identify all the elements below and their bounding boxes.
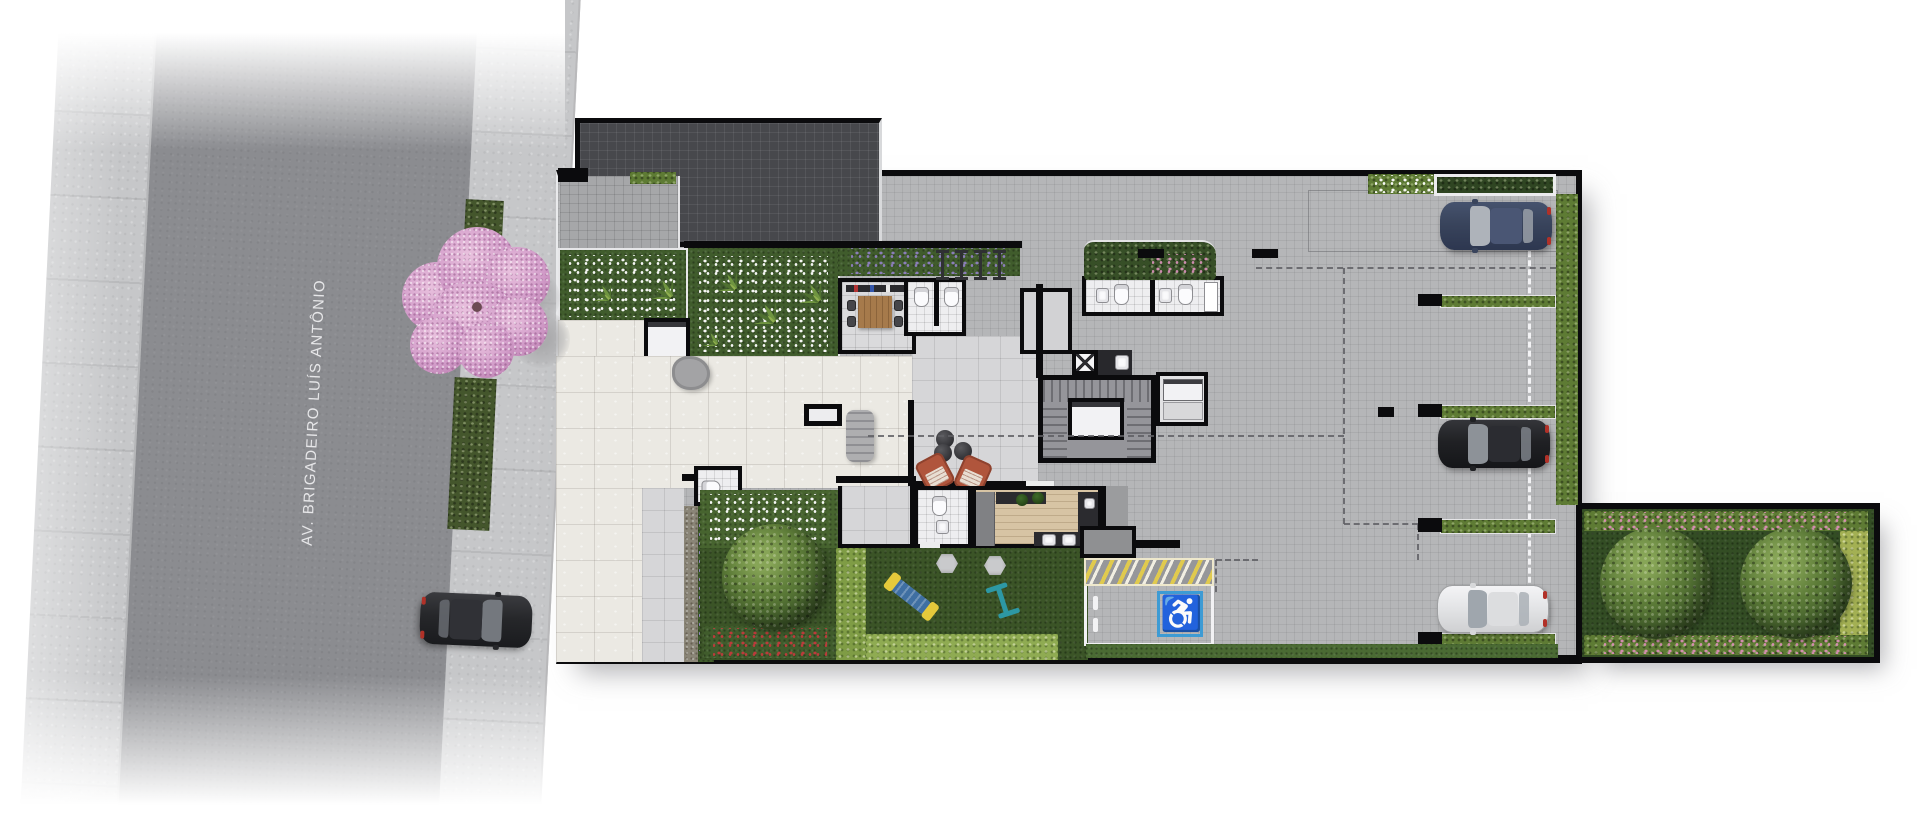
flower-hedge xyxy=(1584,511,1868,531)
planter-hedge xyxy=(1434,174,1556,196)
sink xyxy=(1042,534,1056,546)
bay-tick xyxy=(1093,618,1098,632)
wall-segment xyxy=(1150,280,1155,312)
stair-treads xyxy=(1043,402,1067,458)
round-tree xyxy=(1600,527,1712,639)
sink xyxy=(1096,288,1109,303)
column-stub xyxy=(1378,407,1394,417)
toilet xyxy=(932,496,947,516)
gym-equipment-icon xyxy=(936,250,949,280)
washer xyxy=(1163,379,1203,401)
storage-room xyxy=(1020,288,1072,354)
hedge-strip xyxy=(866,634,1058,660)
wall-segment xyxy=(908,400,914,488)
toilet xyxy=(944,287,959,307)
stair-treads xyxy=(1127,402,1151,458)
agave-plant xyxy=(775,257,821,303)
hedge-mound xyxy=(1084,240,1216,280)
tree-trunk xyxy=(472,302,482,312)
parked-car-white xyxy=(1438,586,1548,632)
parking-hedge-row xyxy=(1440,295,1556,308)
accessible-parking-bay: ♿ xyxy=(1084,586,1214,646)
site-plan-rendering: AV. BRIGADEIRO LUÍS ANTÔNIO xyxy=(0,0,1920,826)
stone-path xyxy=(556,488,642,662)
gym-equipment-icon xyxy=(955,250,968,280)
planter-bench xyxy=(804,404,842,426)
garden-wall xyxy=(684,241,1022,248)
elevator xyxy=(1068,398,1124,440)
counter-sink xyxy=(1098,350,1132,375)
street-name-label: AV. BRIGADEIRO LUÍS ANTÔNIO xyxy=(299,286,332,547)
gym-equipment-icon xyxy=(993,250,1006,280)
wall-segment xyxy=(934,282,939,326)
potted-plant xyxy=(1016,494,1028,506)
sideboard xyxy=(846,285,908,292)
accessible-symbol-box: ♿ xyxy=(1157,591,1203,637)
dining-table xyxy=(858,296,892,328)
parked-car-black xyxy=(1438,420,1550,468)
counter xyxy=(1163,402,1203,420)
gym-equipment-row xyxy=(936,250,1016,276)
sink xyxy=(1062,534,1076,546)
wall-segment xyxy=(558,168,588,182)
chair xyxy=(894,316,903,327)
parked-car-navy xyxy=(1440,202,1552,250)
lounge-sofa xyxy=(672,356,710,390)
bay-tick xyxy=(1093,596,1098,610)
chair xyxy=(847,300,856,311)
entry-hedge xyxy=(630,172,676,184)
agave-plant xyxy=(686,314,718,346)
boundary-hedge xyxy=(1556,194,1578,505)
street-car xyxy=(419,592,533,649)
restroom xyxy=(914,486,972,548)
restrooms-block xyxy=(1082,276,1224,316)
grass-strip xyxy=(1086,644,1558,658)
projection-dashed-line xyxy=(1343,268,1345,524)
projection-dashed-line xyxy=(1215,560,1217,592)
column-stub xyxy=(1418,294,1442,306)
covered-terrace xyxy=(838,486,914,548)
projection-dashed-line xyxy=(868,435,1344,437)
column-stub xyxy=(1418,404,1442,417)
projection-dashed-line xyxy=(1216,559,1258,561)
utility-room xyxy=(1080,526,1136,558)
sink xyxy=(936,520,949,534)
cabinet-run xyxy=(976,492,995,546)
hedge-strip xyxy=(836,548,866,660)
paved-path xyxy=(642,488,684,662)
round-tree xyxy=(1740,527,1852,639)
chair xyxy=(894,300,903,311)
sink xyxy=(1084,498,1095,509)
sidewalk-hedge xyxy=(447,377,496,531)
hatched-no-parking-zone xyxy=(1084,558,1214,586)
gym-equipment-icon xyxy=(974,250,987,280)
sink xyxy=(1115,355,1129,370)
red-flower-bed xyxy=(704,626,836,658)
laundry-room xyxy=(1156,372,1208,426)
toilet xyxy=(914,287,929,307)
projection-dashed-line xyxy=(1344,523,1418,525)
shaft-duct xyxy=(1072,350,1098,375)
white-fade-corner xyxy=(0,0,120,826)
column-stub xyxy=(1418,518,1442,532)
toilet xyxy=(1114,284,1129,305)
agave-plant xyxy=(627,253,673,299)
closet xyxy=(1204,282,1218,312)
mulch-strip xyxy=(684,506,698,662)
wall-segment xyxy=(836,476,916,483)
wall-segment xyxy=(1036,284,1043,378)
agave-plant xyxy=(728,276,776,324)
restroom xyxy=(904,278,966,336)
parking-hedge-row xyxy=(1440,405,1556,419)
parking-hedge-row xyxy=(1440,519,1556,534)
flowering-tree xyxy=(392,222,570,394)
flower-hedge xyxy=(1584,635,1868,655)
wall-segment xyxy=(1136,540,1180,548)
column-stub xyxy=(1138,249,1164,258)
toilet xyxy=(1178,284,1193,305)
potted-plant xyxy=(1032,492,1044,504)
projection-dashed-line xyxy=(1256,267,1556,269)
sink xyxy=(1159,288,1172,303)
entry-driveway xyxy=(560,176,680,250)
rear-garden xyxy=(1582,503,1880,663)
column-stub xyxy=(1252,249,1278,258)
chair xyxy=(847,316,856,327)
wheelchair-icon: ♿ xyxy=(1160,594,1200,634)
agave-plant xyxy=(573,263,611,301)
round-tree xyxy=(722,524,828,630)
